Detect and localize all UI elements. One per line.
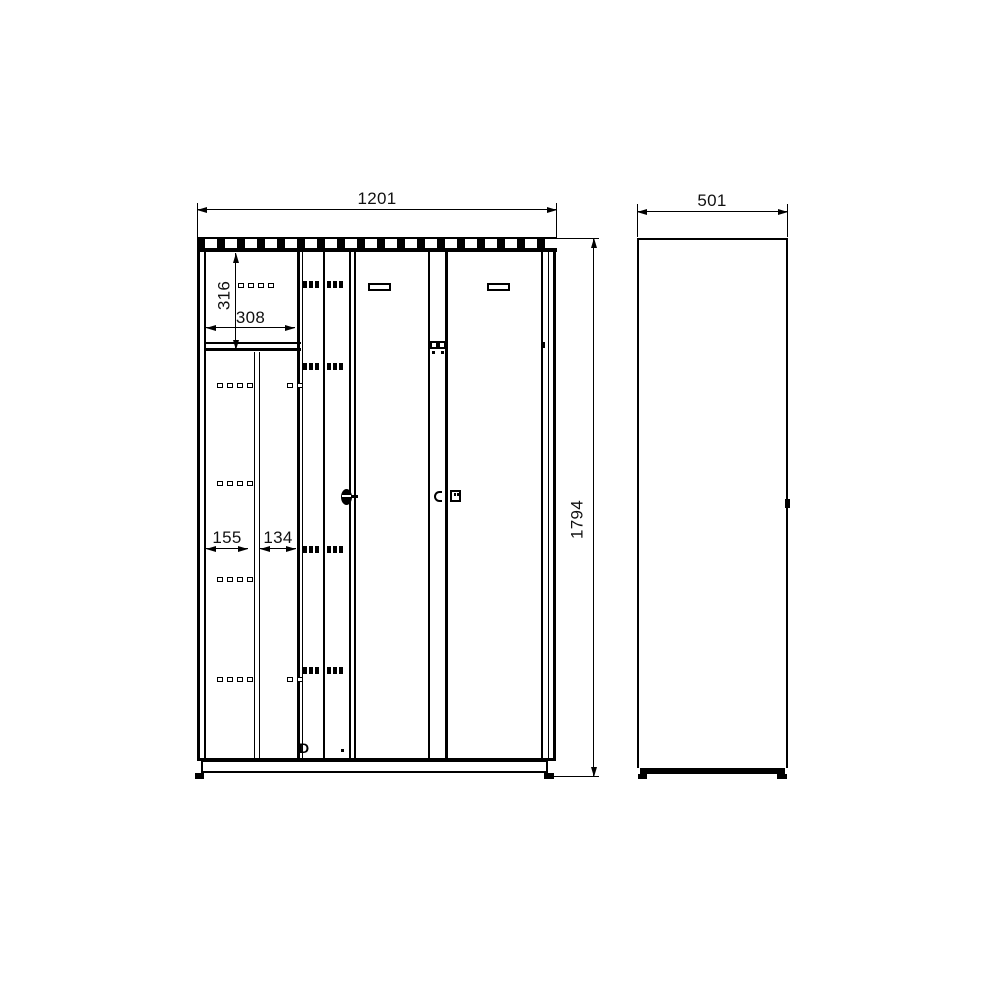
hasp-lock-plate-icon (450, 490, 461, 502)
outer-wall-left (197, 250, 200, 760)
vent-slot (297, 383, 303, 388)
vent-slot (258, 283, 264, 288)
foot-left (195, 773, 204, 779)
door-divider-line (254, 352, 256, 758)
vent-slot (217, 383, 223, 388)
hasp-lock-dot (457, 493, 459, 496)
side-body (637, 238, 788, 768)
hinge-plate (438, 341, 446, 349)
vent-slots-row (217, 577, 253, 582)
strip-divider-line (323, 250, 325, 760)
vent-slots-row (287, 677, 303, 682)
arrow-up-icon (233, 253, 239, 263)
vent-slot (287, 383, 293, 388)
vent-slot (217, 481, 223, 486)
vent-slot (238, 283, 244, 288)
louver-block (303, 667, 320, 674)
hinge-tick (432, 351, 435, 354)
door-divider-line (259, 352, 261, 758)
vent-slots-row (287, 383, 303, 388)
dimension-line (206, 327, 295, 328)
dim-narrow-door-left-label: 155 (200, 529, 254, 546)
vent-slot (227, 677, 233, 682)
arrow-right-icon (778, 209, 788, 215)
vent-slot (248, 283, 254, 288)
vent-slot (247, 577, 253, 582)
middle-door-left-edge-inner (354, 250, 356, 760)
vent-slot (247, 481, 253, 486)
arrow-left-icon (197, 207, 207, 213)
left-section-right-wall-inner (302, 250, 304, 760)
inner-wall-right (548, 250, 550, 760)
left-section-right-wall (297, 250, 300, 760)
vent-slots-row (238, 283, 274, 288)
right-door-left-edge (445, 250, 448, 760)
dim-compartment-width-label: 308 (206, 309, 295, 326)
vent-slots-row (217, 383, 253, 388)
arrow-down-icon (591, 767, 597, 777)
label-slot-right-door (487, 283, 510, 291)
dim-side-depth-label: 501 (652, 192, 772, 209)
hinge-strip-left-line (428, 250, 430, 760)
vent-slot (217, 577, 223, 582)
shelf-line-bottom (204, 348, 301, 351)
louver-block (303, 363, 320, 370)
top-inner-line (197, 250, 557, 252)
hinge-plate (430, 341, 438, 349)
vent-slots-row (217, 481, 253, 486)
hasp-lock-dot (454, 493, 456, 496)
vent-slot (227, 481, 233, 486)
vent-slot (237, 481, 243, 486)
arrow-down-icon (233, 340, 239, 350)
label-slot-middle-door (368, 283, 391, 291)
side-foot-left (638, 774, 647, 779)
vent-slot (237, 577, 243, 582)
middle-door-left-edge (349, 250, 351, 760)
vent-slot (247, 677, 253, 682)
vent-slot (297, 677, 303, 682)
right-door-right-edge (541, 250, 543, 760)
louver-block (327, 363, 344, 370)
dim-front-height-label: 1794 (569, 480, 586, 560)
dimension-line (197, 209, 557, 210)
louver-block (327, 667, 344, 674)
technical-drawing-sheet: D 1201 501 1794 (0, 0, 1000, 1000)
vent-slot (227, 383, 233, 388)
vent-slot (227, 577, 233, 582)
base-plinth (201, 760, 548, 773)
louver-block (327, 281, 344, 288)
arrow-right-icon (547, 207, 557, 213)
vent-slot (287, 677, 293, 682)
side-lock-tick (785, 499, 790, 508)
top-vent-band (197, 237, 557, 250)
louver-block (303, 546, 320, 553)
louver-block (327, 546, 344, 553)
arrow-left-icon (637, 209, 647, 215)
dimension-line (637, 211, 788, 212)
dimension-line (235, 253, 236, 350)
vent-slot (237, 383, 243, 388)
bottom-detail-mark: D (299, 741, 309, 755)
side-base-bar (640, 768, 785, 774)
bottom-dot (341, 749, 344, 752)
outer-wall-right (553, 250, 556, 760)
hinge-tick (441, 351, 444, 354)
vent-slot (247, 383, 253, 388)
vent-slots-row (217, 677, 253, 682)
hasp-hook-icon (434, 491, 442, 502)
louver-block (303, 281, 320, 288)
vent-slot (217, 677, 223, 682)
vent-slot (268, 283, 274, 288)
vent-slot (237, 677, 243, 682)
dim-narrow-door-right-label: 134 (251, 529, 305, 546)
shelf-line-top (204, 342, 301, 344)
dim-front-width-label: 1201 (317, 190, 437, 207)
hinge-tick (542, 342, 545, 348)
arrow-up-icon (591, 238, 597, 248)
lock-slit (342, 495, 351, 497)
side-foot-right (777, 774, 787, 779)
dimension-line (593, 238, 594, 777)
